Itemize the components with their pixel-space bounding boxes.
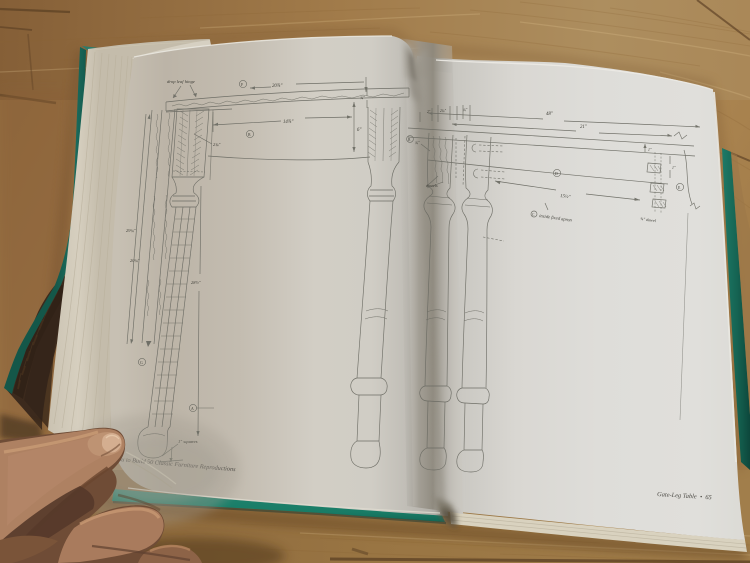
svg-text:G: G [140,361,143,365]
svg-text:20¼": 20¼" [130,258,140,263]
svg-text:F: F [241,83,243,87]
svg-text:29¼": 29¼" [126,228,136,233]
svg-text:21": 21" [580,125,588,130]
svg-text:¾": ¾" [415,141,420,145]
svg-text:2¾": 2¾" [213,142,220,147]
svg-text:20¾": 20¾" [272,84,283,89]
svg-text:1": 1" [672,166,676,170]
svg-text:¾": ¾" [463,108,468,112]
svg-text:1": 1" [648,148,652,152]
svg-text:dowels: dowels [426,183,438,188]
svg-text:2": 2" [427,110,431,114]
svg-text:2¾": 2¾" [440,109,446,113]
svg-text:A: A [191,407,194,411]
svg-text:D: D [555,172,558,176]
svg-text:drop leaf hinge: drop leaf hinge [167,79,195,84]
svg-text:28½": 28½" [191,280,201,285]
svg-text:48": 48" [546,112,554,117]
svg-text:14¾": 14¾" [283,120,294,125]
svg-text:¾": ¾" [360,95,365,100]
